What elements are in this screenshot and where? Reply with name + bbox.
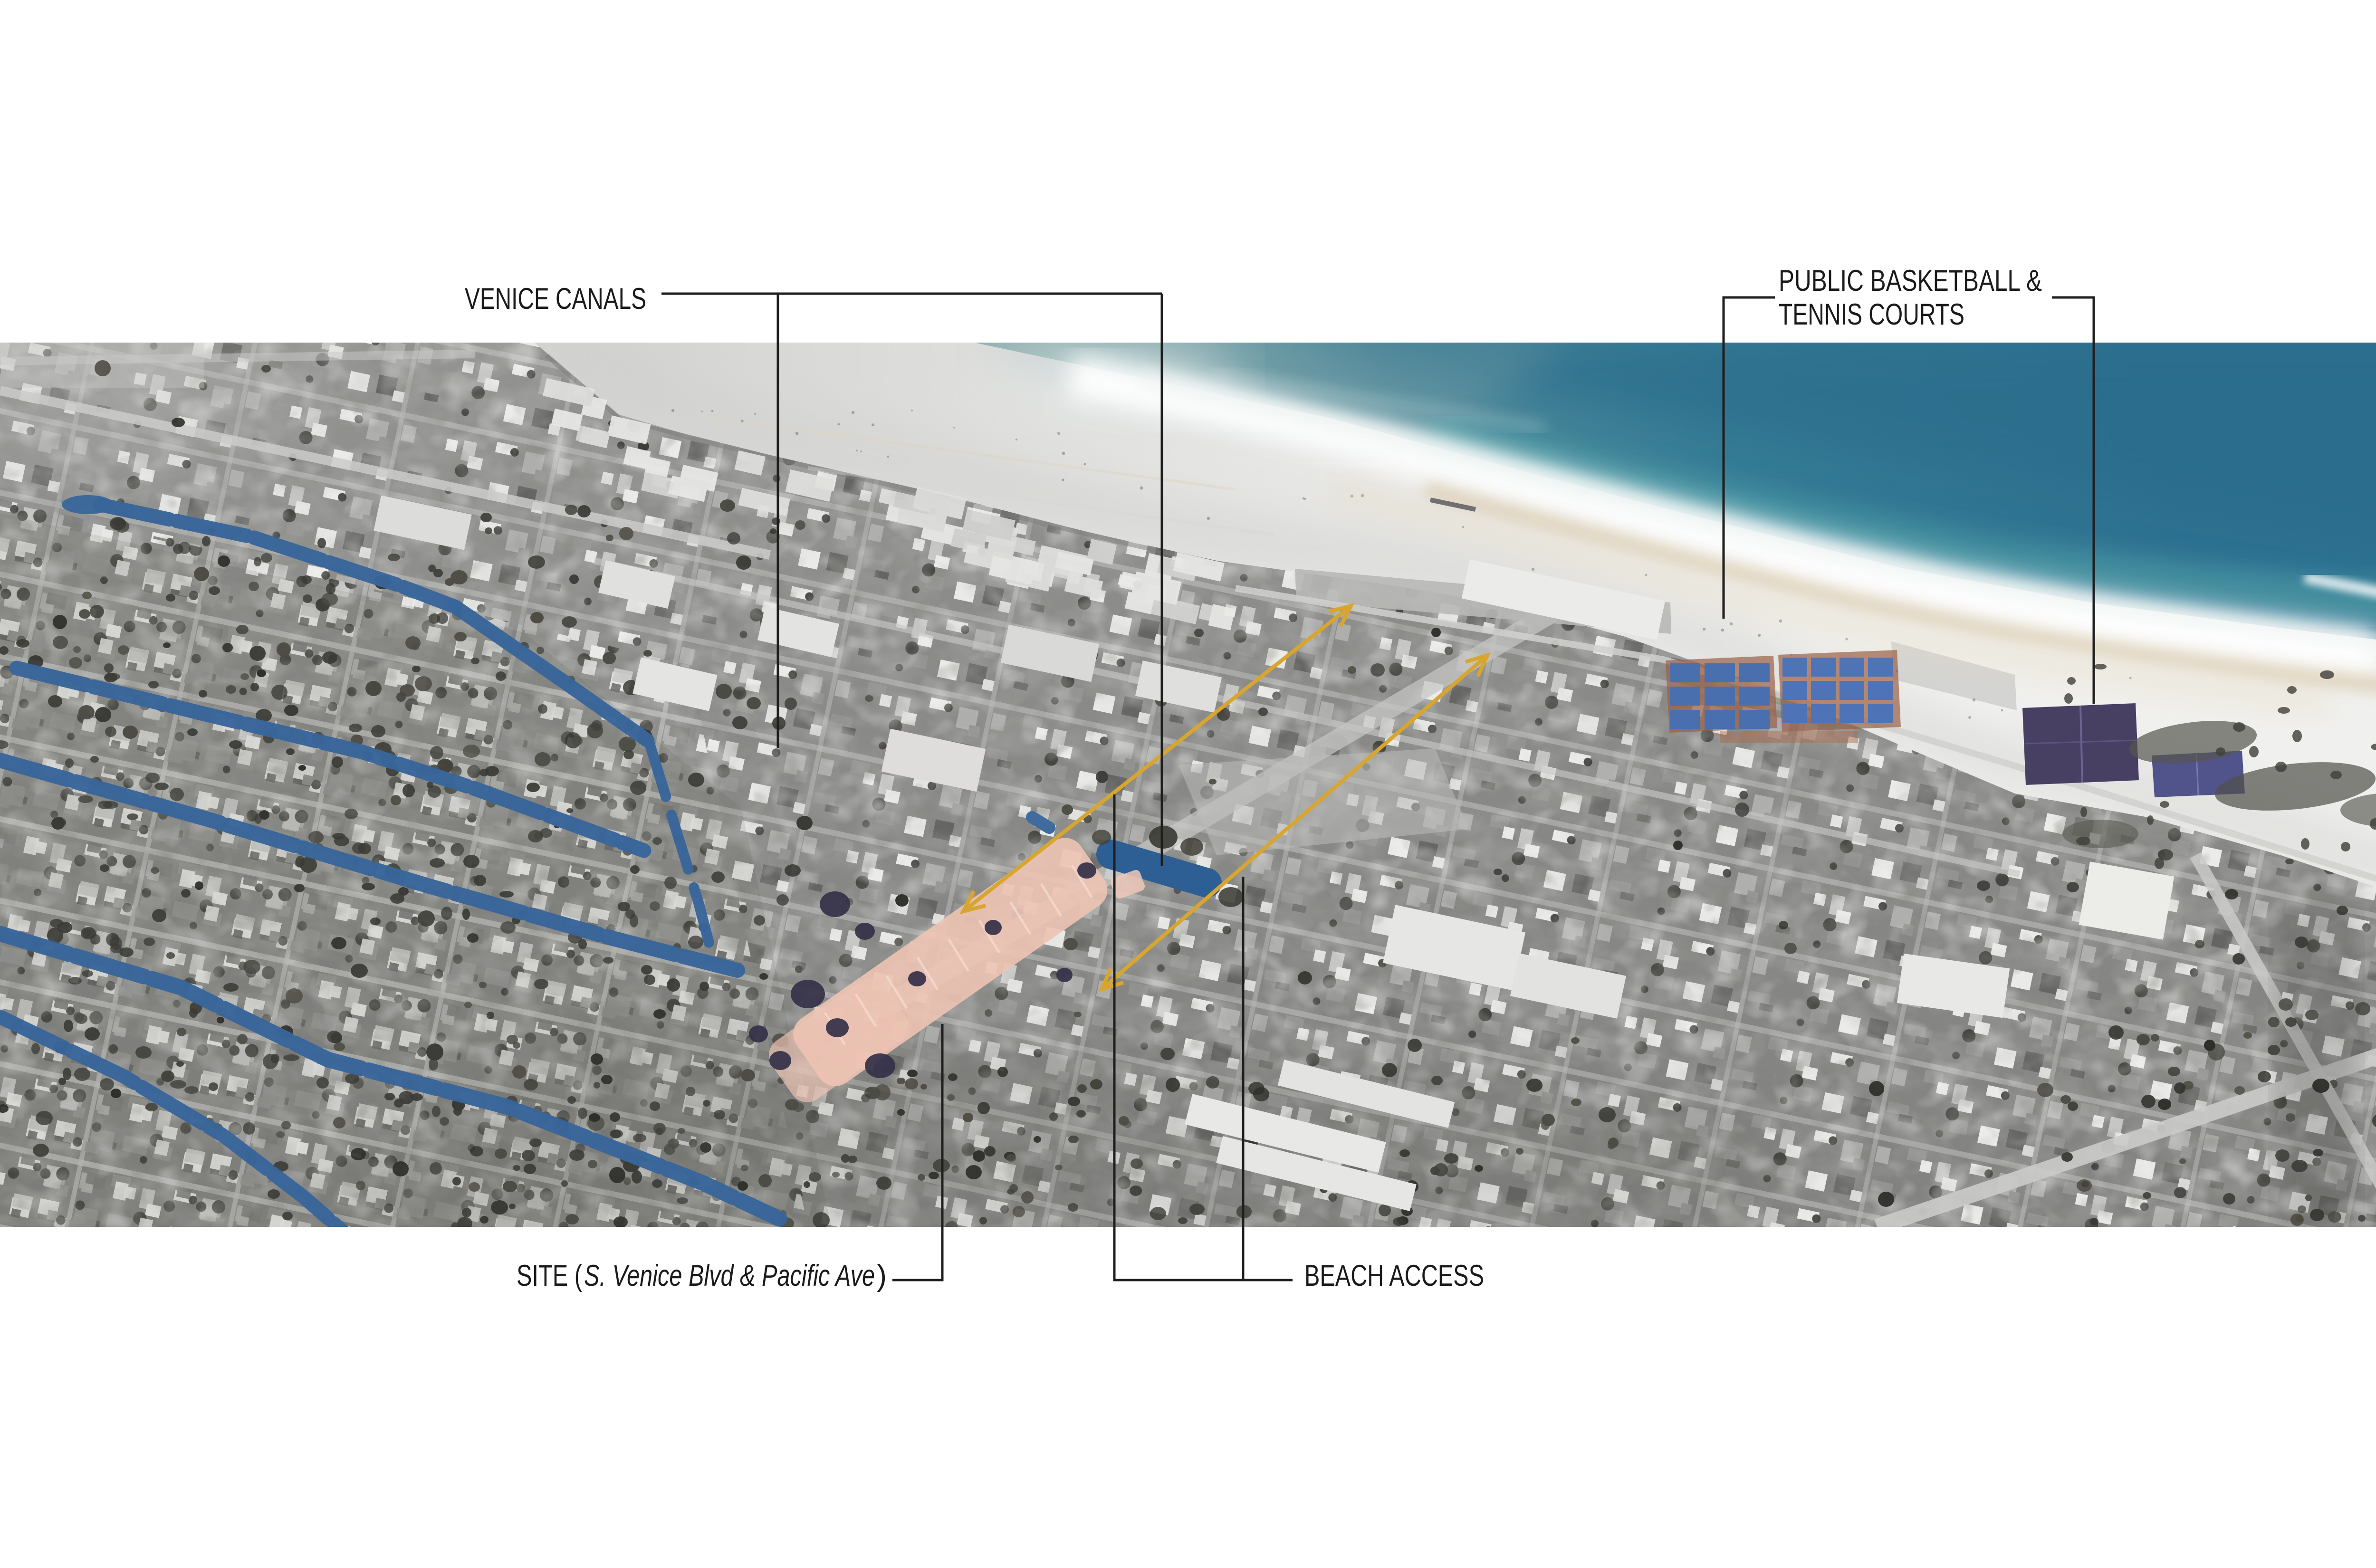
svg-text:): ) <box>877 1259 887 1292</box>
svg-text:PUBLIC BASKETBALL &: PUBLIC BASKETBALL & <box>1779 264 2042 297</box>
svg-text:BEACH ACCESS: BEACH ACCESS <box>1304 1259 1484 1292</box>
svg-text:TENNIS COURTS: TENNIS COURTS <box>1779 298 1964 331</box>
svg-text:SITE (: SITE ( <box>517 1259 582 1292</box>
svg-text:VENICE CANALS: VENICE CANALS <box>465 282 646 316</box>
svg-text:S. Venice Blvd & Pacific Ave: S. Venice Blvd & Pacific Ave <box>584 1259 875 1292</box>
